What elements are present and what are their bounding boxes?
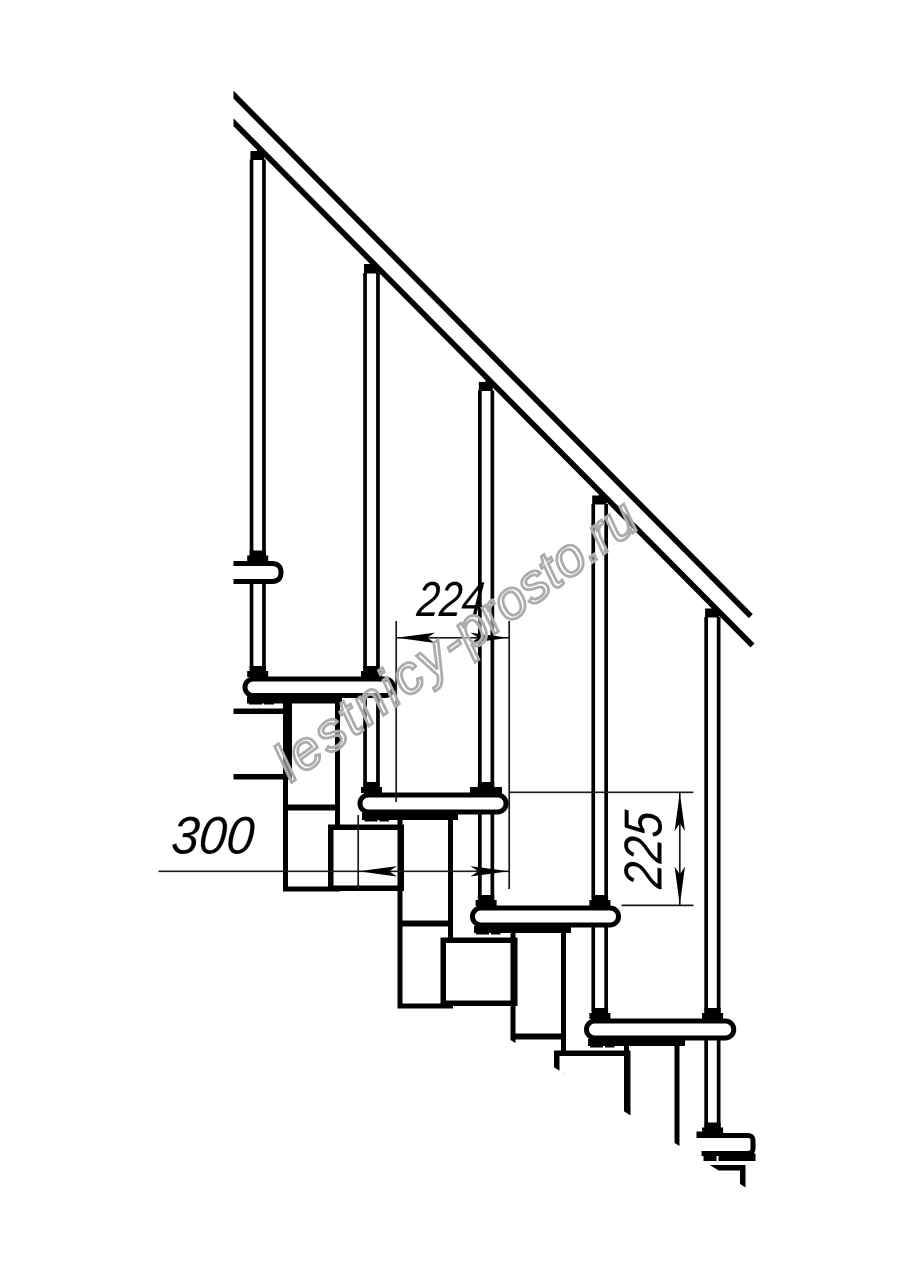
svg-text:225: 225	[613, 808, 673, 892]
svg-text:300: 300	[169, 806, 257, 865]
